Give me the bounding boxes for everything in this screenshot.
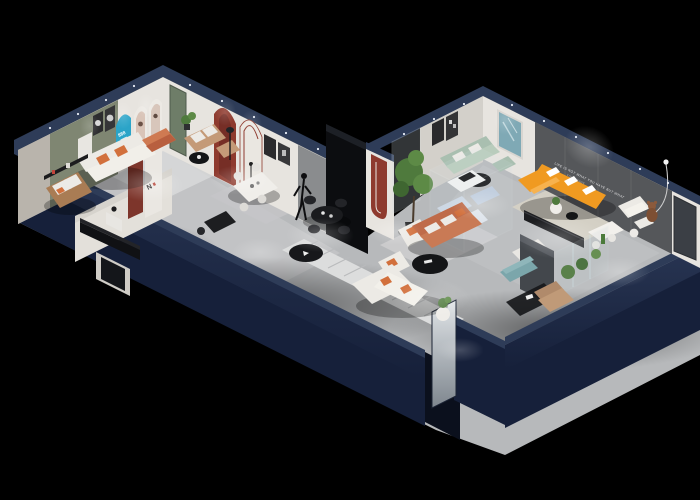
floorplan-scene: 888 bbox=[0, 0, 700, 500]
extra-chair bbox=[630, 229, 639, 238]
black-oval-table bbox=[412, 254, 448, 274]
dark-door-right bbox=[674, 196, 696, 260]
showroom-render: 888 bbox=[0, 0, 700, 500]
shelf-decor bbox=[66, 163, 70, 168]
shelf-decor-red bbox=[52, 170, 55, 174]
